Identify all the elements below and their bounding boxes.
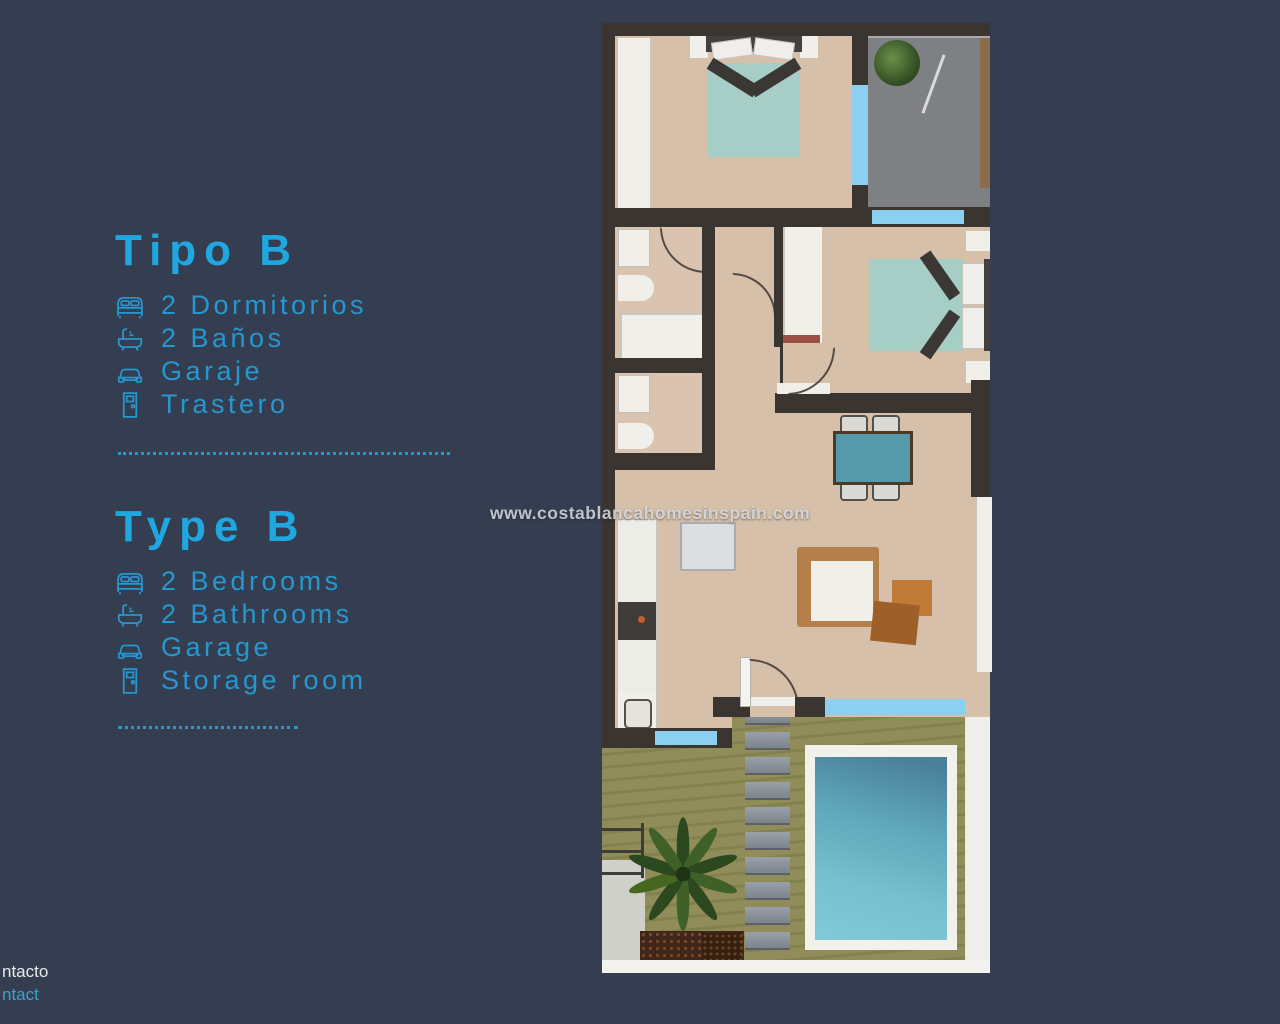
plan-bottom-border [602, 960, 990, 973]
door-icon [115, 666, 145, 696]
watermark: www.costablancahomesinspain.com [490, 503, 810, 524]
wall [615, 208, 660, 227]
pool-water [815, 757, 947, 940]
bed-2-headboard [984, 259, 990, 351]
stepping-stone [745, 807, 790, 825]
feature-row-banos: 2 Baños [115, 322, 367, 355]
wall [602, 453, 715, 470]
cooktop [618, 602, 656, 640]
wardrobe-bedroom-2 [783, 223, 822, 343]
wall [602, 23, 990, 36]
stepping-stone [745, 757, 790, 775]
bathroom-1-toilet [618, 275, 654, 301]
feature-label: Trastero [161, 389, 289, 420]
pillow [962, 307, 986, 349]
stepping-stone [745, 732, 790, 750]
wardrobe-base [783, 335, 820, 343]
bed-2-duvet [869, 259, 964, 351]
feature-row-garage: Garage [115, 631, 367, 664]
wardrobe-bedroom-1 [618, 38, 652, 210]
driveway-plant [874, 40, 920, 86]
bathroom-1-sink [618, 229, 650, 267]
stepping-stone [745, 907, 790, 925]
fridge [680, 522, 736, 571]
armchair [870, 601, 920, 646]
stepping-stone [745, 882, 790, 900]
feature-row-bedrooms: 2 Bedrooms [115, 565, 367, 598]
window [655, 731, 717, 745]
feature-label: 2 Baños [161, 323, 285, 354]
sofa-cushions [811, 561, 873, 621]
feature-row-garaje: Garaje [115, 355, 367, 388]
feature-label: 2 Bedrooms [161, 566, 342, 597]
cooktop-knob [638, 616, 645, 623]
stepping-stone [745, 832, 790, 850]
shelving-unit [975, 497, 992, 672]
driveway-side-strip [980, 38, 990, 188]
car-icon [115, 633, 145, 663]
window [852, 85, 868, 185]
nightstand [966, 231, 990, 251]
wall [615, 358, 702, 373]
contact-label-english[interactable]: ntact [2, 985, 39, 1005]
bath-icon [115, 324, 145, 354]
dotted-separator-top [118, 452, 450, 455]
feature-row-trastero: Trastero [115, 388, 367, 421]
door-icon [115, 390, 145, 420]
palm-tree [620, 811, 746, 937]
wall [775, 393, 990, 413]
terrace-right-edge [965, 699, 990, 960]
pillow [962, 263, 986, 305]
bed-icon [115, 567, 145, 597]
panel-english-title: Type B [115, 502, 367, 552]
stepping-stone [745, 932, 790, 950]
feature-label: Garage [161, 632, 272, 663]
window [825, 699, 965, 715]
bathroom-2-toilet [618, 423, 654, 449]
feature-label: Garaje [161, 356, 263, 387]
wall [602, 23, 615, 745]
bathroom-2-sink [618, 375, 650, 413]
floorplan-image [602, 23, 990, 973]
panel-spanish-title: Tipo B [115, 226, 367, 276]
dotted-separator-bottom [118, 726, 298, 729]
wall [774, 222, 783, 347]
feature-label: 2 Bathrooms [161, 599, 353, 630]
window [872, 210, 964, 224]
kitchen-sink-basin [624, 699, 652, 729]
car-icon [115, 357, 145, 387]
feature-label: 2 Dormitorios [161, 290, 367, 321]
page: Tipo B 2 Dormitorios 2 Baños [0, 0, 1280, 1024]
nightstand [800, 36, 818, 58]
dining-table [833, 431, 913, 485]
feature-row-bathrooms: 2 Bathrooms [115, 598, 367, 631]
panel-english: Type B 2 Bedrooms 2 Bathrooms [115, 502, 367, 697]
stepping-stone [745, 782, 790, 800]
bed-icon [115, 291, 145, 321]
contact-label-spanish[interactable]: ntacto [2, 962, 48, 982]
feature-label: Storage room [161, 665, 367, 696]
wall [971, 380, 990, 497]
bath-icon [115, 600, 145, 630]
feature-row-storage: Storage room [115, 664, 367, 697]
feature-row-dormitorios: 2 Dormitorios [115, 289, 367, 322]
stepping-stone [745, 857, 790, 875]
wall [795, 697, 825, 717]
panel-spanish: Tipo B 2 Dormitorios 2 Baños [115, 226, 367, 421]
